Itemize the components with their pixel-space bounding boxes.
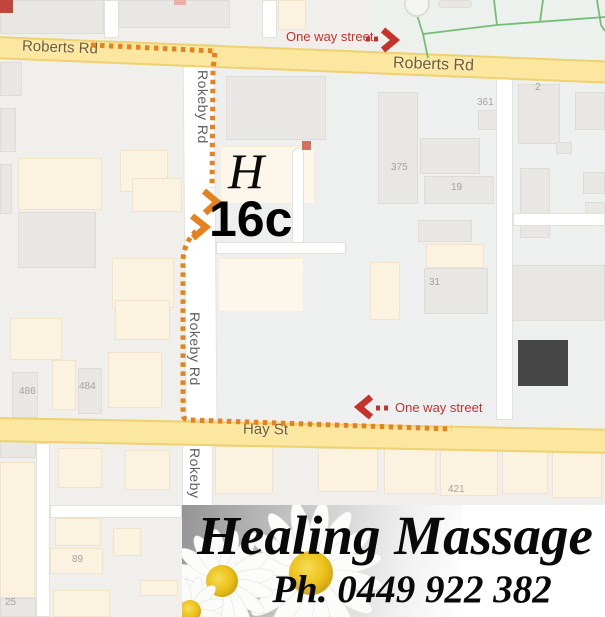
- building: [226, 76, 326, 140]
- building: [575, 92, 605, 130]
- building: [10, 318, 62, 360]
- building: [115, 300, 170, 340]
- building: [108, 352, 162, 408]
- building: [384, 444, 436, 494]
- one-way-label-hay: One way street: [395, 400, 482, 415]
- building: [0, 0, 104, 34]
- building: [370, 262, 400, 320]
- road-minor: [496, 60, 513, 420]
- building-red: [174, 0, 186, 5]
- building-number: 31: [429, 277, 440, 288]
- building-red: [0, 0, 13, 13]
- building: [512, 265, 605, 321]
- building: [556, 142, 572, 154]
- street-label-rokeby-south: Rokeby: [187, 448, 203, 498]
- road-laneway: [513, 213, 605, 226]
- road-laneway: [292, 148, 304, 252]
- destination-marker: H: [228, 146, 264, 196]
- street-label-hay-st: Hay St: [243, 421, 288, 439]
- business-name: Healing Massage: [188, 507, 602, 565]
- building-number: 375: [391, 162, 408, 173]
- building-number: 25: [5, 597, 16, 608]
- map-canvas: Roberts Rd Roberts Rd Rokeby Rd Rokeby R…: [0, 0, 605, 617]
- building: [420, 138, 480, 174]
- building: [502, 450, 548, 494]
- building-red: [302, 141, 311, 150]
- building: [132, 178, 182, 212]
- building: [53, 590, 110, 617]
- building: [426, 244, 484, 268]
- building-dark: [518, 340, 568, 386]
- building-number: 2: [535, 82, 541, 93]
- building: [318, 448, 378, 492]
- building: [278, 0, 306, 30]
- destination-number: 16c: [209, 194, 292, 244]
- street-label-rokeby-north: Rokeby Rd: [195, 70, 211, 144]
- park-area: [372, 0, 605, 60]
- building: [518, 84, 560, 144]
- building: [18, 158, 102, 210]
- building-number: 421: [448, 484, 465, 495]
- street-label-roberts-east: Roberts Rd: [393, 55, 475, 76]
- road-laneway: [50, 505, 182, 518]
- building: [18, 212, 96, 268]
- building: [0, 462, 35, 598]
- building: [58, 448, 102, 488]
- building: [418, 220, 472, 242]
- building: [215, 446, 273, 494]
- building: [0, 108, 16, 152]
- building: [520, 168, 550, 238]
- building: [55, 518, 101, 546]
- building: [52, 360, 76, 410]
- building: [0, 62, 22, 96]
- building-number: 484: [79, 381, 96, 392]
- building: [378, 92, 418, 204]
- road-minor: [262, 0, 277, 38]
- building-number: 19: [451, 182, 462, 193]
- business-phone: Ph. 0449 922 382: [222, 567, 602, 612]
- street-label-rokeby-mid: Rokeby Rd: [187, 312, 203, 386]
- building-number: 89: [72, 554, 83, 565]
- road-minor: [36, 443, 50, 617]
- street-label-roberts-west: Roberts Rd: [22, 37, 98, 57]
- one-way-label-roberts: One way street: [286, 29, 373, 44]
- building: [552, 452, 602, 498]
- building: [218, 258, 304, 312]
- building: [424, 268, 488, 314]
- building-number: 361: [477, 97, 494, 108]
- building: [125, 450, 170, 490]
- building: [0, 164, 12, 214]
- building: [113, 528, 141, 556]
- road-minor: [104, 0, 119, 38]
- building-number: 486: [19, 386, 36, 397]
- building: [140, 580, 178, 596]
- park-structure: [438, 0, 472, 8]
- business-overlay: Healing Massage Ph. 0449 922 382: [182, 505, 605, 617]
- building: [583, 172, 605, 194]
